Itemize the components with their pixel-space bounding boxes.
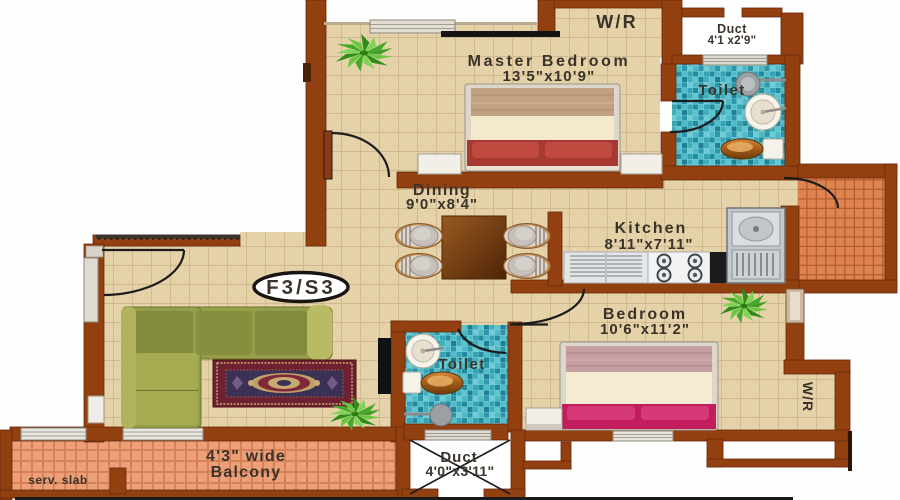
- svg-text:F3/S3: F3/S3: [266, 276, 336, 299]
- svg-text:Balcony: Balcony: [211, 464, 282, 481]
- svg-text:4'1 x2'9": 4'1 x2'9": [708, 35, 757, 47]
- svg-text:W/R: W/R: [596, 12, 638, 32]
- svg-text:Kitchen: Kitchen: [615, 220, 688, 237]
- svg-text:10'6"x11'2": 10'6"x11'2": [600, 321, 690, 338]
- svg-text:9'0"x8'4": 9'0"x8'4": [406, 196, 478, 213]
- svg-text:Toilet: Toilet: [698, 82, 745, 99]
- svg-text:4'3" wide: 4'3" wide: [206, 448, 286, 465]
- svg-text:13'5"x10'9": 13'5"x10'9": [503, 68, 596, 85]
- svg-text:Toilet: Toilet: [438, 356, 485, 373]
- svg-text:4'0"x3'11": 4'0"x3'11": [426, 463, 495, 479]
- svg-text:Duct: Duct: [717, 22, 747, 36]
- svg-text:W/R: W/R: [800, 382, 816, 412]
- svg-text:serv. slab: serv. slab: [28, 473, 87, 487]
- svg-text:8'11"x7'11": 8'11"x7'11": [604, 236, 693, 253]
